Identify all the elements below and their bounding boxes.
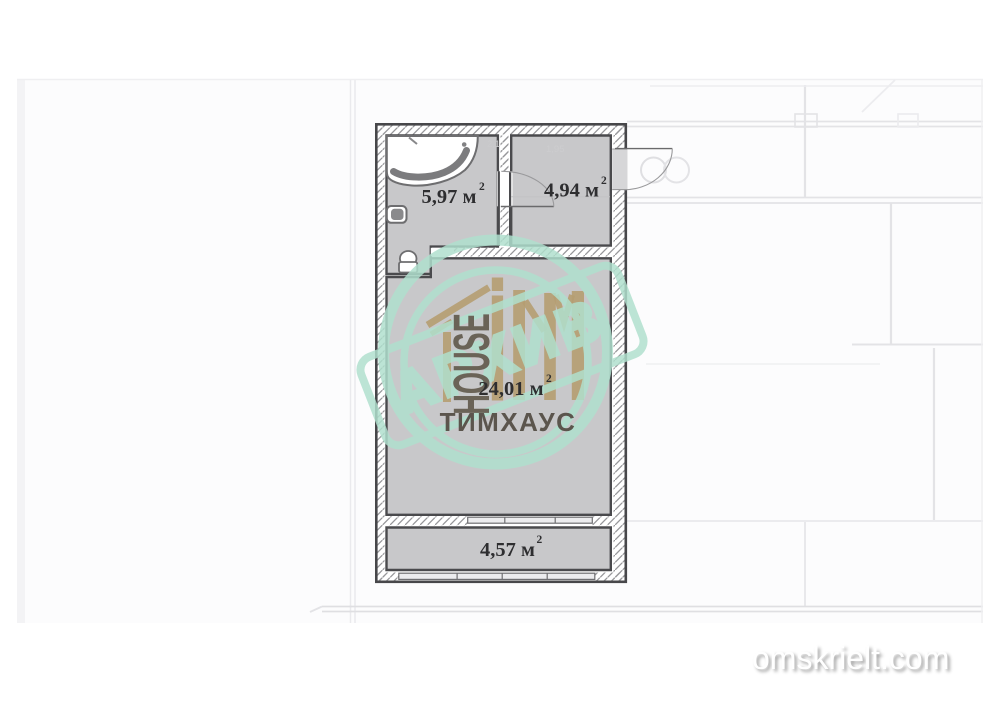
svg-text:4,21: 4,21: [487, 501, 506, 512]
svg-text:4,94 м: 4,94 м: [544, 180, 599, 202]
svg-text:24,01 м: 24,01 м: [478, 378, 543, 400]
svg-text:2: 2: [537, 534, 543, 546]
svg-text:1,95: 1,95: [546, 144, 565, 155]
svg-text:2: 2: [546, 373, 552, 385]
svg-text:2,1: 2,1: [487, 139, 500, 150]
svg-text:h=2,75: h=2,75: [400, 448, 429, 459]
svg-text:2: 2: [479, 181, 485, 193]
svg-text:5,97 м: 5,97 м: [422, 186, 477, 208]
svg-text:4,57 м: 4,57 м: [480, 539, 535, 561]
svg-text:2: 2: [601, 175, 607, 187]
svg-text:ТИМХАУС: ТИМХАУС: [440, 407, 577, 437]
